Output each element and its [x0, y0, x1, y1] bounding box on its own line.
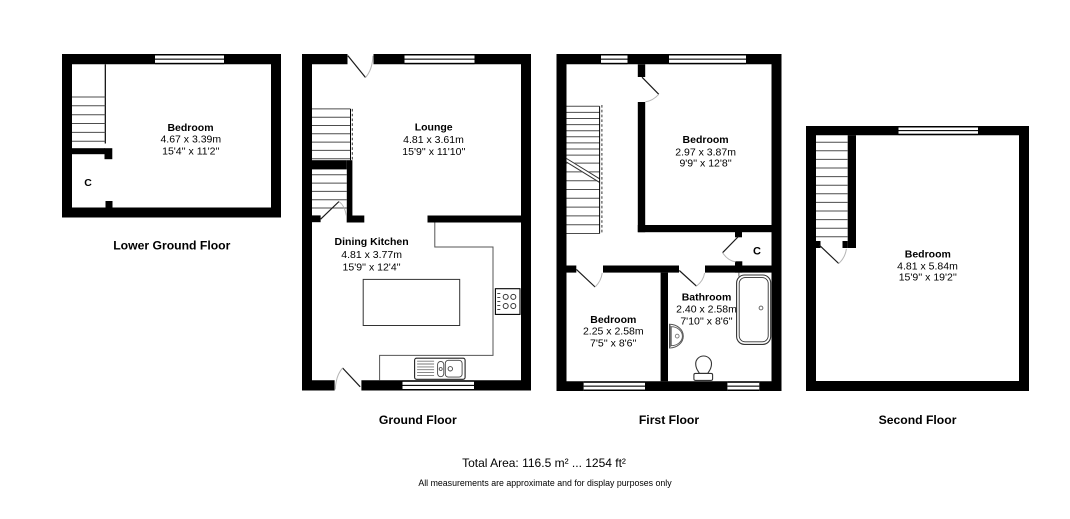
- svg-text:7'5'' x 8'6'': 7'5'' x 8'6'': [590, 338, 636, 350]
- svg-text:Lower Ground Floor: Lower Ground Floor: [113, 238, 230, 252]
- svg-text:Total Area: 116.5 m² ... 1254: Total Area: 116.5 m² ... 1254 ft²: [462, 456, 626, 470]
- svg-text:Bedroom: Bedroom: [905, 249, 951, 261]
- svg-text:Second Floor: Second Floor: [879, 413, 957, 427]
- svg-text:First Floor: First Floor: [639, 413, 700, 427]
- svg-text:4.81 x 3.61m: 4.81 x 3.61m: [403, 134, 464, 146]
- svg-text:Bedroom: Bedroom: [590, 314, 636, 326]
- svg-text:15'9'' x 12'4'': 15'9'' x 12'4'': [343, 261, 401, 273]
- svg-text:9'9'' x 12'8'': 9'9'' x 12'8'': [679, 158, 731, 170]
- svg-text:Bedroom: Bedroom: [167, 122, 213, 134]
- svg-text:Ground Floor: Ground Floor: [379, 413, 457, 427]
- svg-text:4.81 x 3.77m: 4.81 x 3.77m: [341, 249, 402, 261]
- svg-text:2.40 x 2.58m: 2.40 x 2.58m: [676, 304, 737, 316]
- svg-text:Dining Kitchen: Dining Kitchen: [335, 236, 409, 248]
- svg-text:C: C: [753, 246, 761, 258]
- svg-text:4.67 x 3.39m: 4.67 x 3.39m: [160, 134, 221, 146]
- svg-text:15'9'' x 11'10'': 15'9'' x 11'10'': [402, 146, 465, 158]
- svg-text:15'9'' x 19'2'': 15'9'' x 19'2'': [899, 272, 957, 284]
- svg-text:Bathroom: Bathroom: [682, 291, 732, 303]
- svg-text:All measurements are approxima: All measurements are approximate and for…: [418, 478, 672, 488]
- svg-text:2.25 x 2.58m: 2.25 x 2.58m: [583, 325, 644, 337]
- svg-text:7'10'' x 8'6'': 7'10'' x 8'6'': [680, 316, 732, 328]
- svg-text:C: C: [84, 177, 92, 189]
- svg-text:Bedroom: Bedroom: [683, 134, 729, 146]
- svg-text:2.97 x 3.87m: 2.97 x 3.87m: [675, 146, 736, 158]
- svg-text:Lounge: Lounge: [415, 122, 453, 134]
- svg-text:15'4'' x 11'2'': 15'4'' x 11'2'': [162, 146, 219, 158]
